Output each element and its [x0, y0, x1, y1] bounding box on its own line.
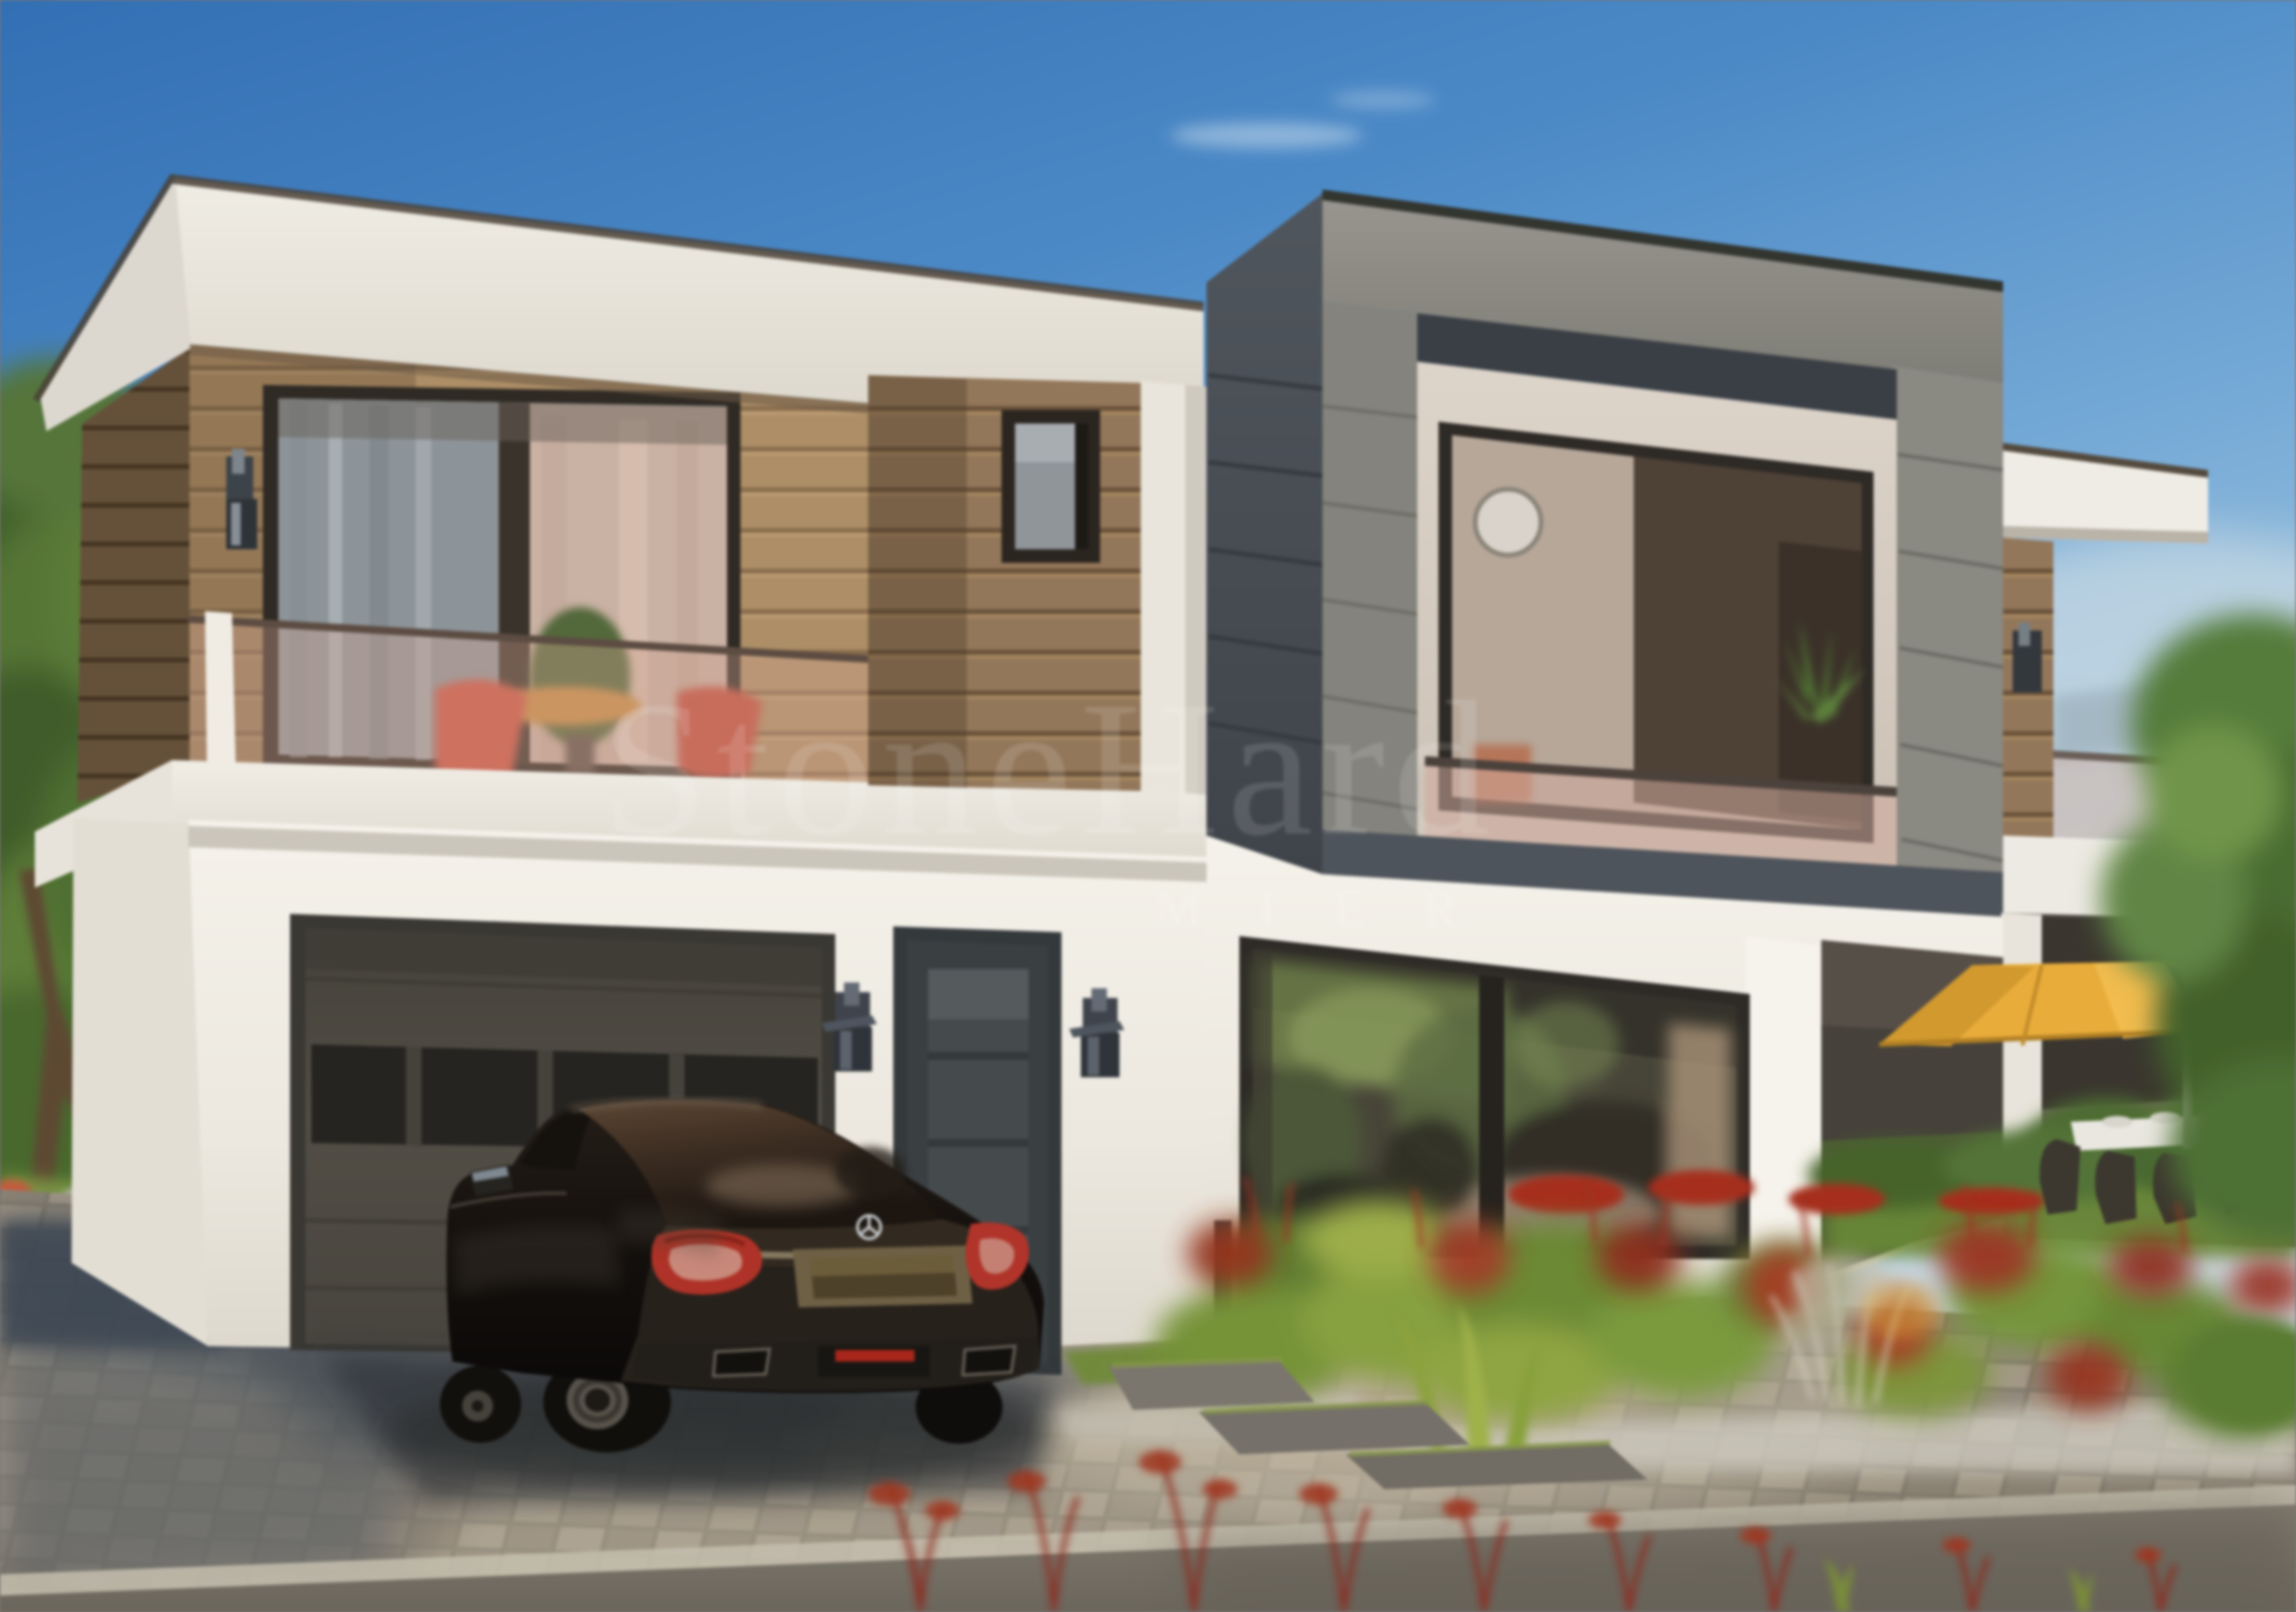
- svg-text:StoneHard: StoneHard: [600, 662, 1497, 876]
- svg-text:MIER: MIER: [1154, 879, 1514, 939]
